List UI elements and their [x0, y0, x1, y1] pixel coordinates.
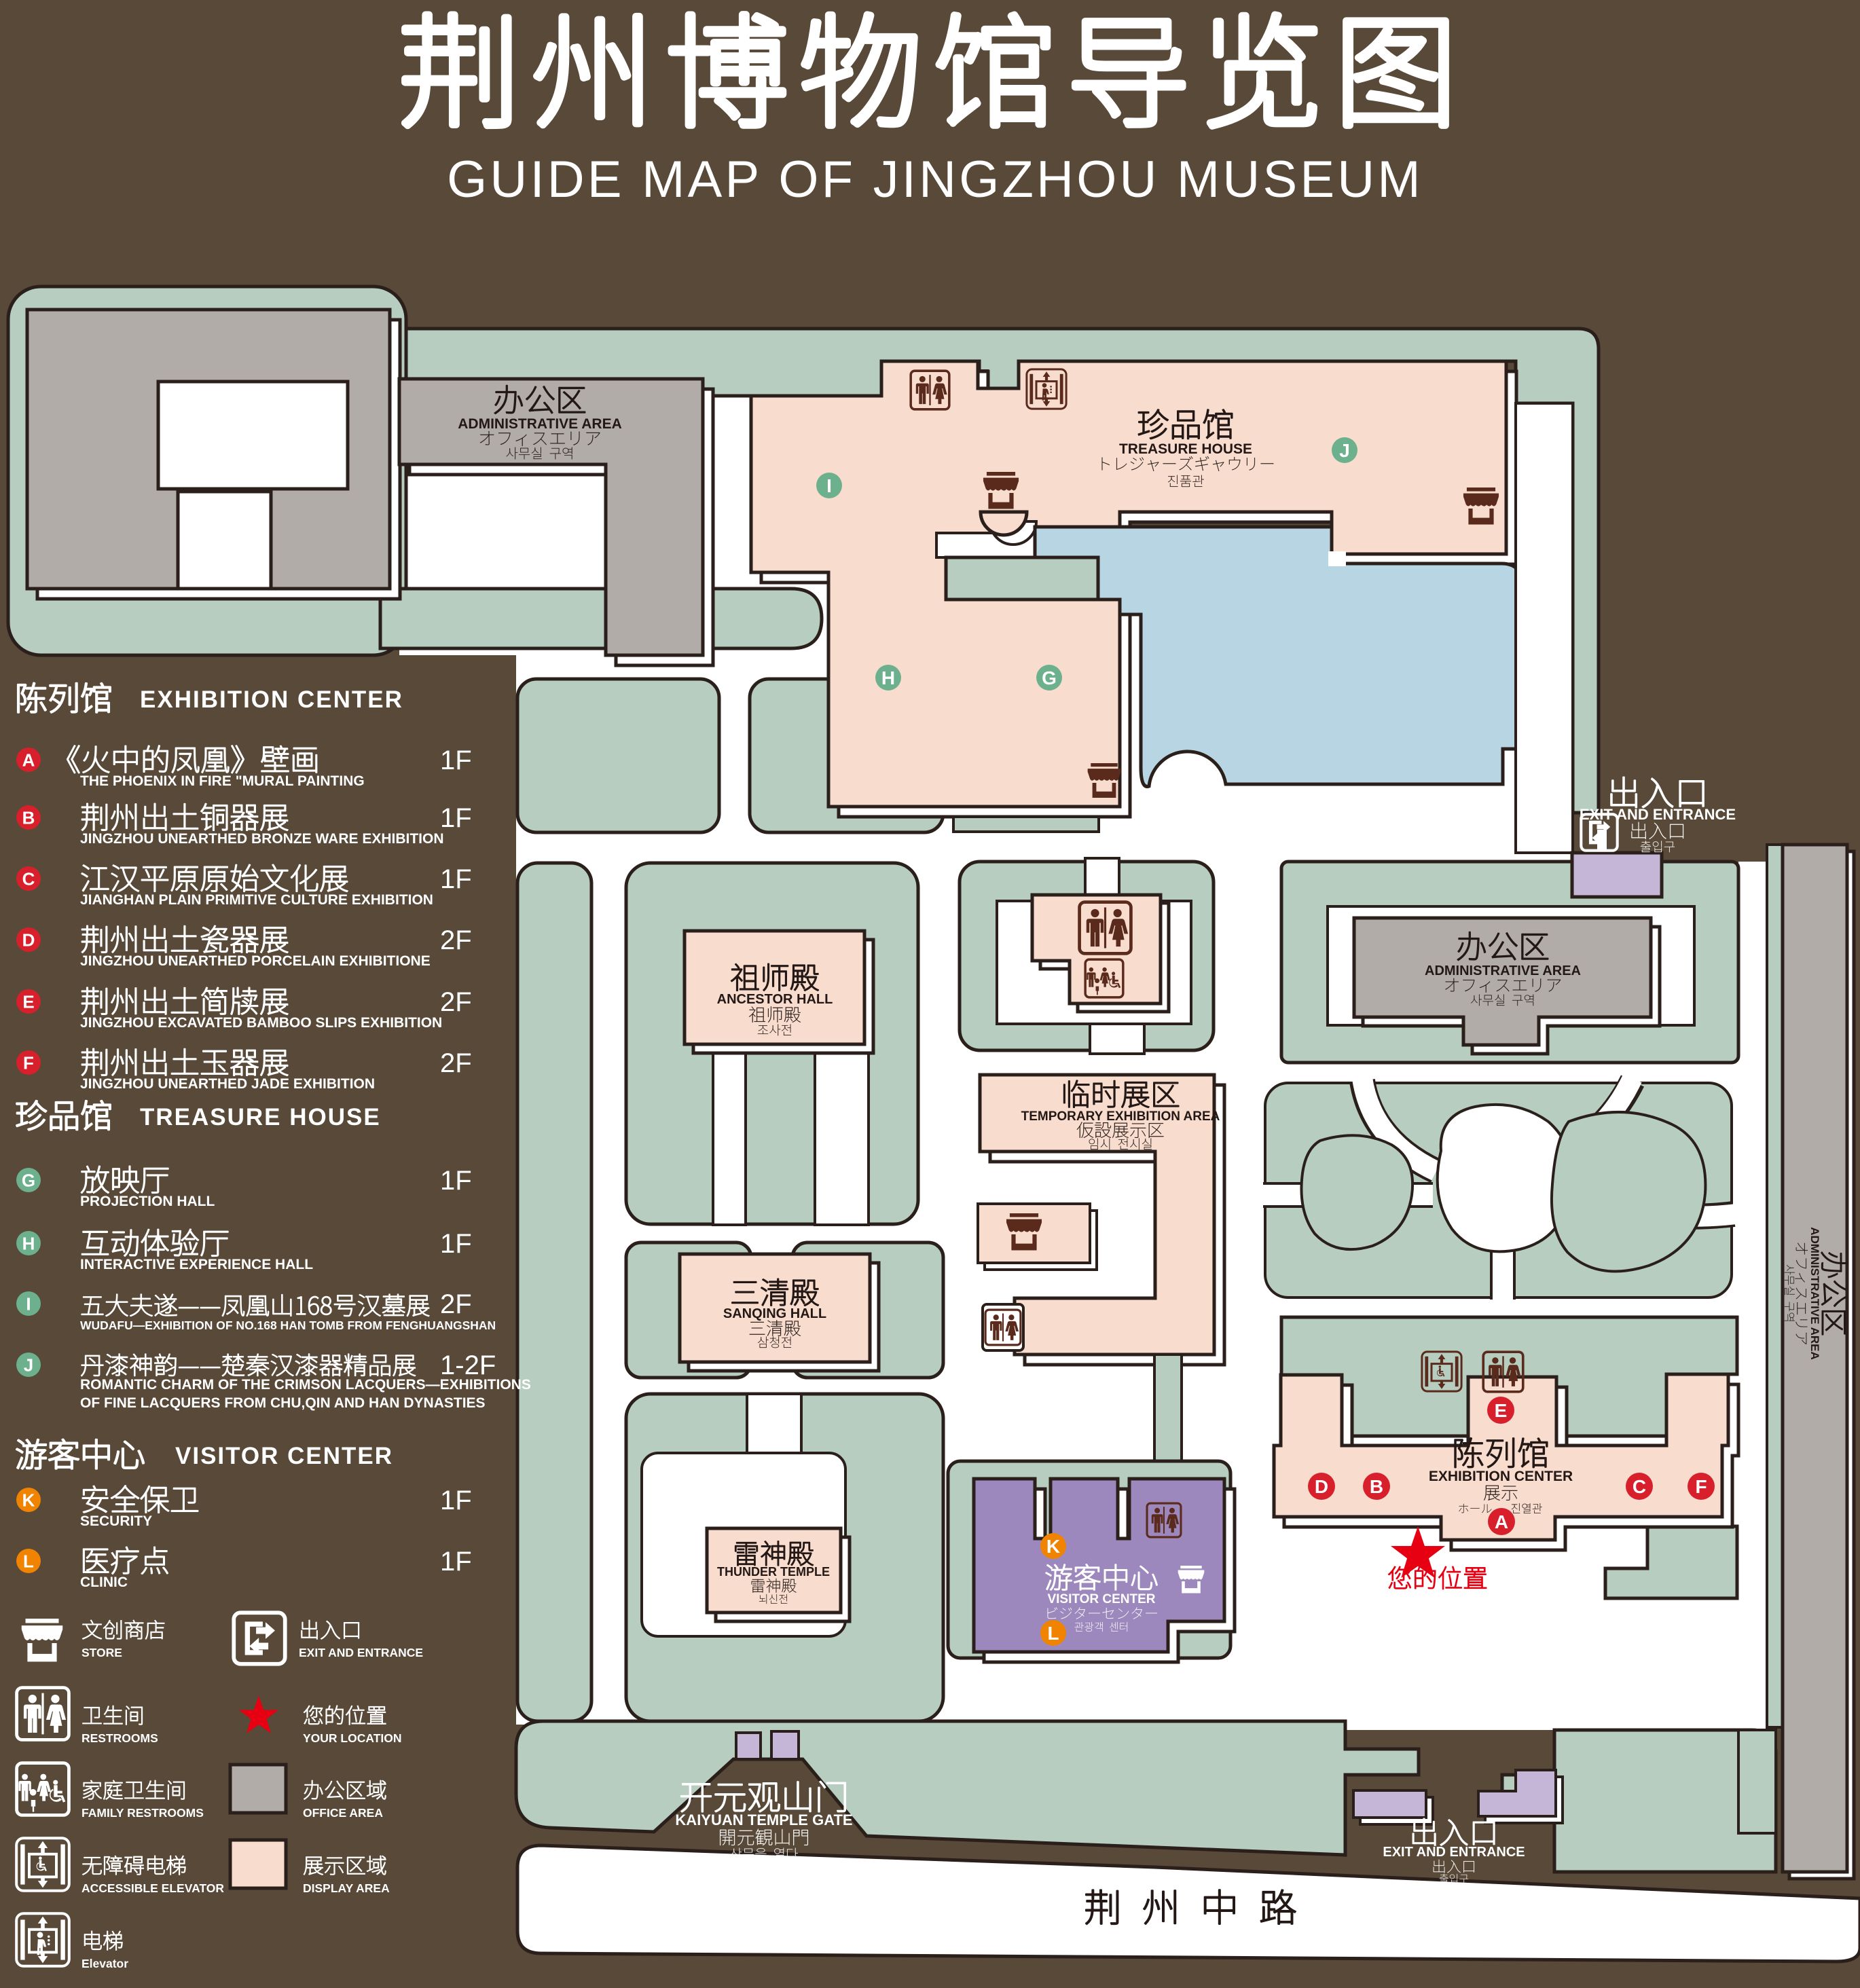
svg-text:K: K [22, 1490, 35, 1510]
svg-text:2F: 2F [440, 1289, 472, 1319]
svg-text:2F: 2F [440, 1048, 472, 1078]
svg-text:VISITOR CENTER: VISITOR CENTER [1047, 1592, 1155, 1606]
svg-text:INTERACTIVE EXPERIENCE HALL: INTERACTIVE EXPERIENCE HALL [80, 1257, 313, 1272]
svg-text:THE PHOENIX IN FIRE "MURAL PAI: THE PHOENIX IN FIRE "MURAL PAINTING [80, 773, 365, 789]
svg-text:SANQING HALL: SANQING HALL [723, 1306, 826, 1321]
svg-text:1F: 1F [440, 864, 472, 894]
svg-text:F: F [23, 1052, 34, 1073]
svg-text:L: L [23, 1551, 34, 1571]
svg-text:H: H [881, 667, 895, 688]
svg-text:JINGZHOU UNEARTHED BRONZE WARE: JINGZHOU UNEARTHED BRONZE WARE EXHIBITIO… [80, 831, 444, 847]
svg-text:A: A [1495, 1511, 1508, 1532]
svg-text:TREASURE HOUSE: TREASURE HOUSE [140, 1104, 381, 1130]
svg-text:1F: 1F [440, 1486, 472, 1515]
svg-text:I: I [826, 475, 832, 496]
svg-text:ROMANTIC CHARM OF THE CRIMSON: ROMANTIC CHARM OF THE CRIMSON LACQUERS—E… [80, 1377, 531, 1393]
svg-text:A: A [22, 750, 35, 770]
svg-text:JIANGHAN PLAIN PRIMITIVE CULTU: JIANGHAN PLAIN PRIMITIVE CULTURE EXHIBIT… [80, 892, 433, 908]
svg-text:KAIYUAN TEMPLE GATE: KAIYUAN TEMPLE GATE [675, 1811, 852, 1828]
svg-text:CLINIC: CLINIC [80, 1575, 128, 1590]
svg-text:G: G [22, 1170, 35, 1190]
svg-text:ADMINISTRATIVE AREA: ADMINISTRATIVE AREA [458, 416, 622, 432]
svg-text:JINGZHOU UNEARTHED JADE EXHIBI: JINGZHOU UNEARTHED JADE EXHIBITION [80, 1076, 375, 1092]
svg-text:OF FINE LACQUERS FROM CHU,QIN: OF FINE LACQUERS FROM CHU,QIN AND HAN DY… [80, 1395, 486, 1411]
svg-text:C: C [1633, 1476, 1646, 1497]
svg-text:1-2F: 1-2F [440, 1350, 496, 1380]
svg-text:JINGZHOU UNEARTHED PORCELAIN E: JINGZHOU UNEARTHED PORCELAIN EXHIBITIONE [80, 953, 431, 969]
svg-text:TEMPORARY EXHIBITION AREA: TEMPORARY EXHIBITION AREA [1021, 1109, 1220, 1124]
svg-text:FAMILY RESTROOMS: FAMILY RESTROOMS [81, 1806, 204, 1820]
svg-text:K: K [1046, 1536, 1060, 1557]
svg-text:YOUR LOCATION: YOUR LOCATION [303, 1731, 402, 1745]
svg-text:EXIT AND ENTRANCE: EXIT AND ENTRANCE [299, 1646, 423, 1659]
svg-text:ADMINISTRATIVE AREA: ADMINISTRATIVE AREA [1425, 963, 1581, 978]
svg-text:Elevator: Elevator [81, 1957, 128, 1970]
svg-text:EXIT AND ENTRANCE: EXIT AND ENTRANCE [1383, 1845, 1525, 1860]
svg-text:OFFICE AREA: OFFICE AREA [303, 1806, 383, 1820]
svg-text:G: G [1042, 667, 1057, 688]
svg-text:1F: 1F [440, 1547, 472, 1577]
svg-text:E: E [22, 991, 34, 1012]
svg-text:EXHIBITION CENTER: EXHIBITION CENTER [1429, 1469, 1573, 1484]
svg-text:GUIDE MAP OF JINGZHOU MUSEUM: GUIDE MAP OF JINGZHOU MUSEUM [447, 151, 1423, 208]
svg-text:B: B [22, 807, 35, 828]
svg-text:ANCESTOR HALL: ANCESTOR HALL [717, 992, 833, 1007]
svg-text:THUNDER TEMPLE: THUNDER TEMPLE [717, 1565, 830, 1579]
svg-text:1F: 1F [440, 745, 472, 775]
svg-text:STORE: STORE [81, 1646, 122, 1659]
svg-text:J: J [24, 1355, 33, 1375]
svg-text:EXHIBITION CENTER: EXHIBITION CENTER [140, 686, 403, 713]
svg-text:1F: 1F [440, 803, 472, 833]
svg-text:J: J [1339, 440, 1350, 461]
svg-text:1F: 1F [440, 1229, 472, 1259]
svg-text:2F: 2F [440, 987, 472, 1017]
svg-text:JINGZHOU EXCAVATED BAMBOO SLIP: JINGZHOU EXCAVATED BAMBOO SLIPS EXHIBITI… [80, 1015, 442, 1031]
svg-text:2F: 2F [440, 925, 472, 955]
svg-text:WUDAFU—EXHIBITION OF NO.168 HA: WUDAFU—EXHIBITION OF NO.168 HAN TOMB FRO… [80, 1319, 496, 1332]
svg-text:D: D [1315, 1476, 1328, 1497]
svg-text:DISPLAY AREA: DISPLAY AREA [303, 1881, 390, 1895]
svg-text:E: E [1495, 1400, 1508, 1421]
svg-text:D: D [22, 929, 35, 950]
svg-text:SECURITY: SECURITY [80, 1513, 152, 1529]
svg-text:F: F [1695, 1476, 1707, 1497]
svg-text:1F: 1F [440, 1166, 472, 1196]
svg-text:L: L [1047, 1623, 1059, 1644]
svg-text:RESTROOMS: RESTROOMS [81, 1731, 158, 1745]
svg-text:TREASURE HOUSE: TREASURE HOUSE [1119, 441, 1252, 457]
svg-text:EXIT AND ENTRANCE: EXIT AND ENTRANCE [1580, 806, 1736, 823]
svg-text:ADMINISTRATIVE AREA: ADMINISTRATIVE AREA [1808, 1227, 1821, 1360]
svg-text:I: I [26, 1293, 31, 1314]
svg-text:VISITOR CENTER: VISITOR CENTER [175, 1443, 393, 1469]
svg-text:C: C [22, 868, 35, 889]
svg-text:B: B [1370, 1476, 1383, 1497]
svg-text:H: H [22, 1233, 35, 1253]
svg-text:PROJECTION HALL: PROJECTION HALL [80, 1194, 215, 1209]
svg-text:ACCESSIBLE ELEVATOR: ACCESSIBLE ELEVATOR [81, 1881, 224, 1895]
